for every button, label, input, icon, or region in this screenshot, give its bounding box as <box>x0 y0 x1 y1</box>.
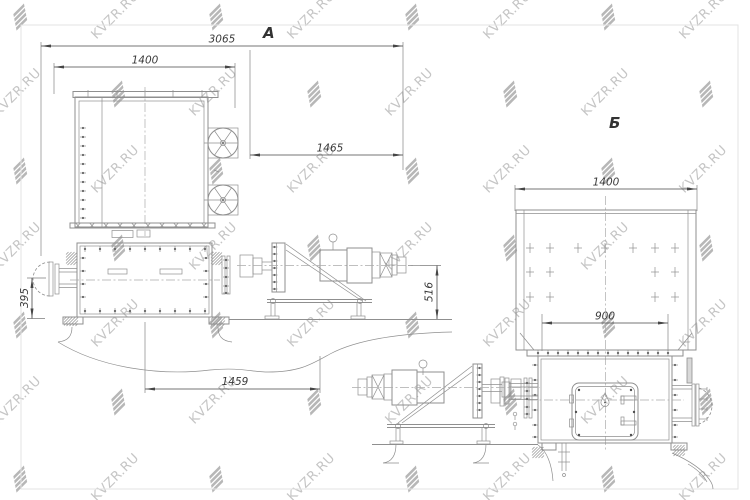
inspection-slot <box>108 269 127 274</box>
dim-drive-length: 1465 <box>317 143 344 155</box>
support-foot <box>542 443 556 450</box>
watermark-logo-icon <box>693 80 720 107</box>
gusset-plates <box>532 445 685 458</box>
watermark-logo-icon <box>399 311 426 338</box>
drain-plug <box>513 422 517 426</box>
eye-bolt <box>419 360 427 368</box>
nameplate <box>112 231 133 238</box>
view-b-label: Б <box>609 114 620 132</box>
shaft-end-cap <box>358 379 367 395</box>
watermark-text: KVZR.RU <box>89 451 143 500</box>
hinge-bolt-strip <box>80 127 86 219</box>
eye-bolt <box>329 234 337 242</box>
dim-bottom-length: 1459 <box>222 376 249 388</box>
watermark-logo-icon <box>301 80 328 107</box>
watermark-text: KVZR.RU <box>89 143 143 197</box>
watermark-logo-icon <box>497 234 524 261</box>
flange-bar-b <box>527 350 683 356</box>
watermark-logo-icon <box>105 234 132 261</box>
support-frame-a <box>229 299 452 320</box>
inlet-flange-a <box>33 262 77 296</box>
watermark-logo-icon <box>105 388 132 415</box>
drawing-sheet: KVZR.RUKVZR.RUKVZR.RUKVZR.RUKVZR.RUKVZR.… <box>0 0 750 500</box>
watermark-text: KVZR.RU <box>285 0 339 42</box>
inspection-slot <box>160 269 182 274</box>
watermark-logo-icon <box>203 311 230 338</box>
dim-body-width: 1400 <box>132 55 159 67</box>
brace-diagonal <box>286 244 366 301</box>
foot-curve <box>383 444 399 463</box>
view-a-label: А <box>262 24 275 42</box>
dim-drive-height: 516 <box>424 282 436 302</box>
watermark-text: KVZR.RU <box>383 374 437 428</box>
watermark-text: KVZR.RU <box>383 66 437 120</box>
watermark-text: KVZR.RU <box>285 297 339 351</box>
junction-bar-a <box>70 223 215 238</box>
foot-curve <box>58 327 72 342</box>
fan-units-a <box>204 128 238 215</box>
watermark-logo-icon <box>301 388 328 415</box>
dim-overall-length: 3065 <box>209 34 236 46</box>
fan-impeller <box>204 128 238 158</box>
watermark-text: KVZR.RU <box>677 451 731 500</box>
sheet-frame <box>21 25 738 489</box>
drain-plug <box>513 412 517 416</box>
watermark-text: KVZR.RU <box>0 220 44 274</box>
watermark-logo-icon <box>7 311 34 338</box>
inlet-flange-b-left <box>491 377 538 430</box>
door-latch <box>621 396 636 400</box>
foot-curve <box>473 444 489 463</box>
watermark-text: KVZR.RU <box>89 0 143 42</box>
hull-line-a <box>58 332 452 372</box>
watermark-logo-icon <box>7 3 34 30</box>
watermark-text: KVZR.RU <box>677 0 731 42</box>
watermark-logo-icon <box>203 3 230 30</box>
watermark-logo-icon <box>595 3 622 30</box>
watermark-text: KVZR.RU <box>0 66 44 120</box>
watermark-text: KVZR.RU <box>187 66 241 120</box>
watermark-text: KVZR.RU <box>481 143 535 197</box>
door-latch <box>621 421 636 425</box>
watermark-logo-icon <box>105 80 132 107</box>
drawing-canvas: KVZR.RUKVZR.RUKVZR.RUKVZR.RUKVZR.RUKVZR.… <box>0 0 750 500</box>
watermark-text: KVZR.RU <box>481 0 535 42</box>
watermark-text: KVZR.RU <box>481 297 535 351</box>
watermark-text: KVZR.RU <box>677 143 731 197</box>
coupling-a <box>222 255 272 294</box>
housing-supports-b <box>532 443 713 489</box>
watermark-logo-icon <box>399 3 426 30</box>
pipe-bend-arc <box>33 262 50 296</box>
watermark-logo-icon <box>497 80 524 107</box>
watermark-logo-icon <box>693 234 720 261</box>
side-plate <box>687 358 692 383</box>
support-frame-b <box>372 424 538 464</box>
fan-impeller <box>204 185 238 215</box>
dim-inlet-height: 395 <box>19 288 31 308</box>
nameplate <box>137 230 150 237</box>
watermark-text: KVZR.RU <box>0 374 44 428</box>
watermark-text: KVZR.RU <box>579 66 633 120</box>
watermark-text: KVZR.RU <box>285 451 339 500</box>
brace-diagonal <box>286 250 362 301</box>
watermark-text: KVZR.RU <box>481 451 535 500</box>
support-foot <box>671 443 687 450</box>
watermark-text: KVZR.RU <box>89 297 143 351</box>
inlet-flange-b-right <box>672 358 712 426</box>
watermark-logo-icon <box>693 388 720 415</box>
dim-body-width-b: 1400 <box>593 177 620 189</box>
watermark-logo-icon <box>7 157 34 184</box>
